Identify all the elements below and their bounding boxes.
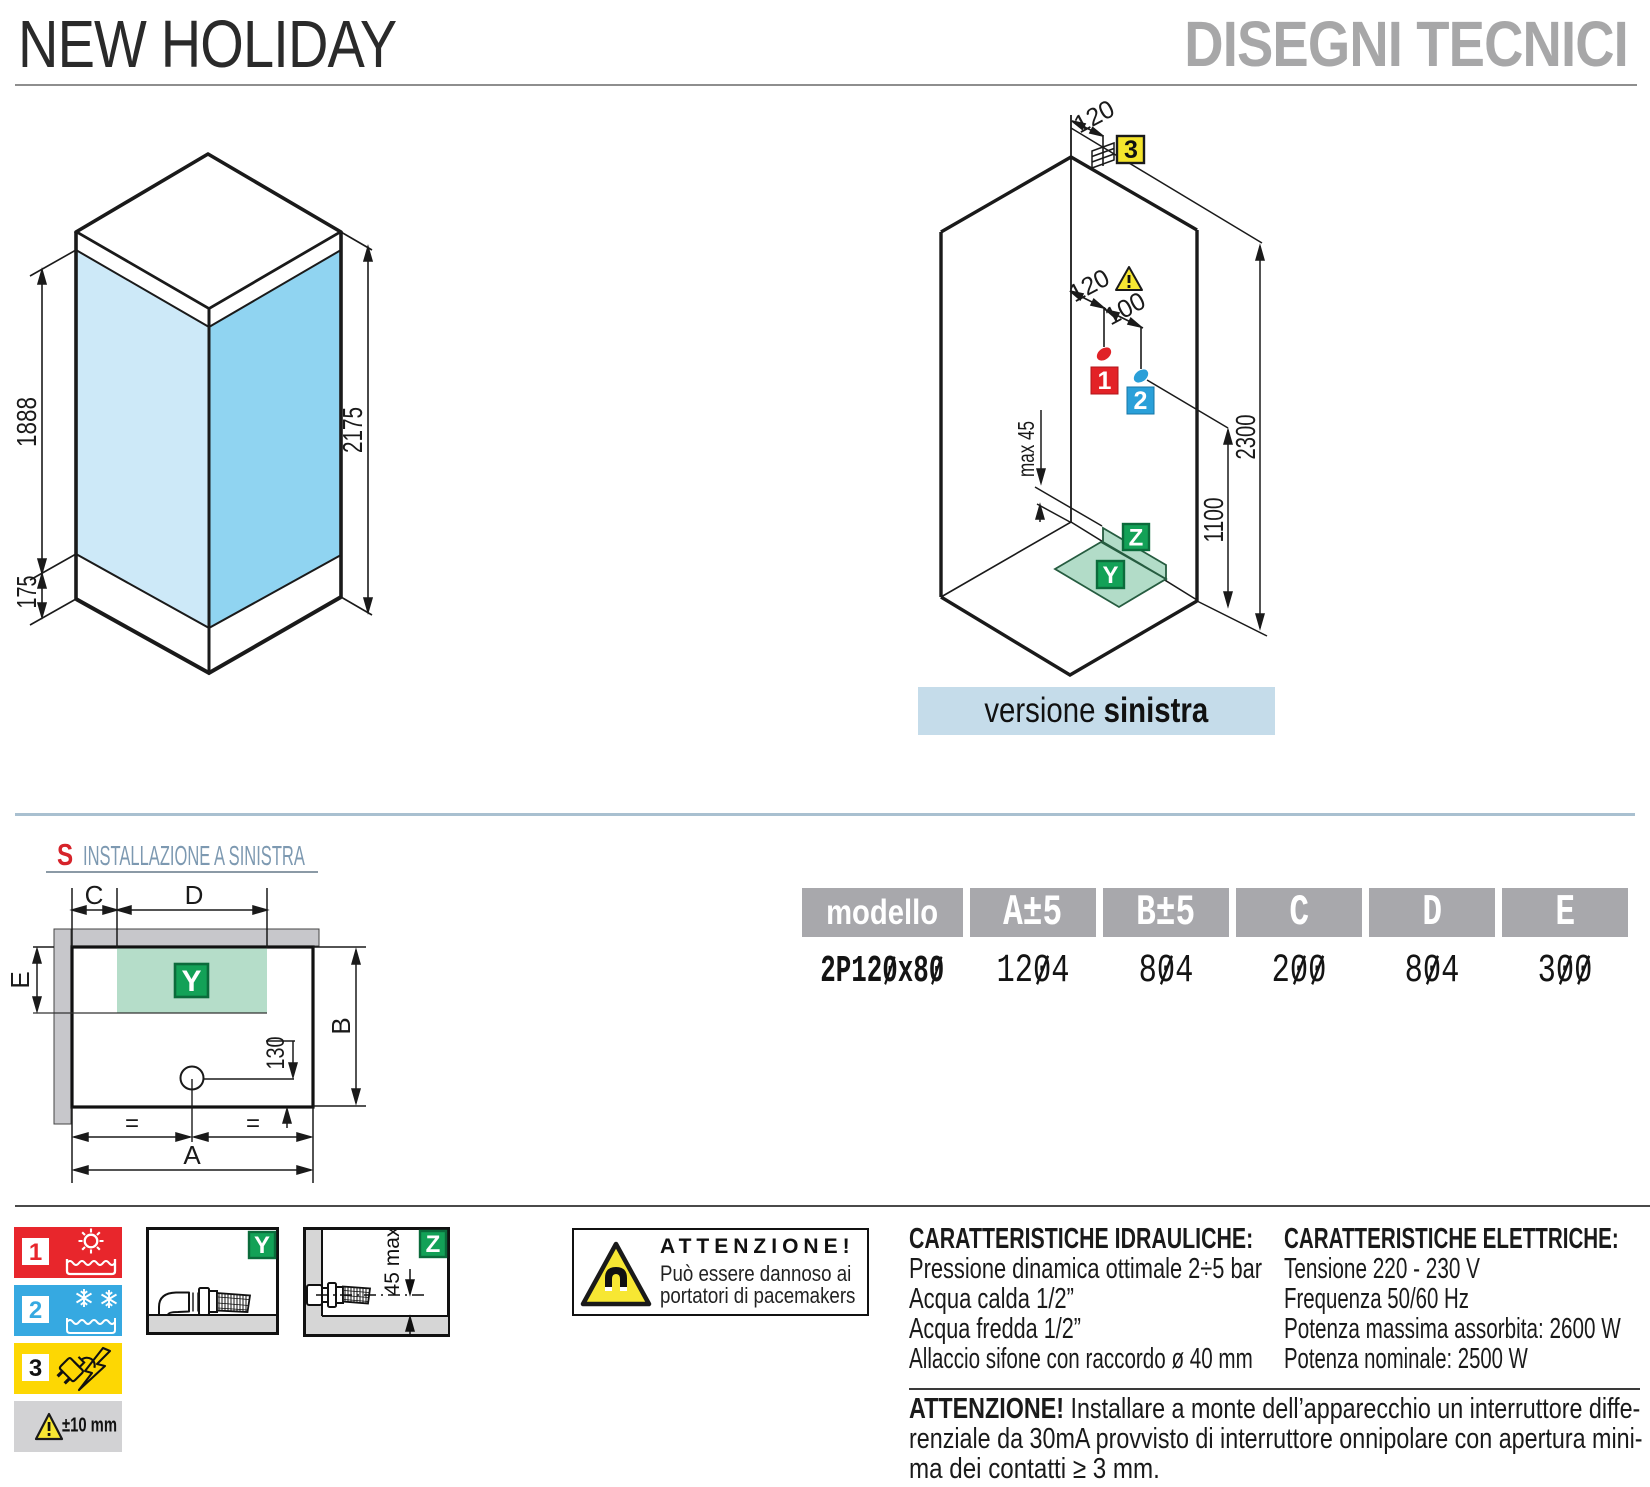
svg-text:A: A [183, 1140, 201, 1170]
svg-text:max 45: max 45 [1013, 421, 1039, 477]
svg-text:1888: 1888 [11, 397, 42, 447]
svg-text:3: 3 [29, 1355, 42, 1382]
svg-text:3: 3 [1124, 136, 1138, 164]
svg-text:Y: Y [181, 965, 201, 998]
svg-text:100: 100 [1100, 287, 1150, 331]
svg-text:D: D [185, 880, 204, 910]
svg-text:Y: Y [254, 1232, 270, 1259]
svg-text:Z: Z [426, 1231, 441, 1258]
svg-text:130: 130 [262, 1037, 290, 1070]
svg-text:B: B [326, 1017, 356, 1034]
svg-text:2: 2 [29, 1297, 42, 1324]
svg-text:=: = [246, 1110, 260, 1137]
svg-text:Z: Z [1129, 525, 1144, 552]
svg-text:=: = [125, 1110, 139, 1137]
svg-text:2: 2 [1134, 387, 1148, 415]
svg-text:175: 175 [11, 576, 42, 609]
svg-text:C: C [85, 880, 104, 910]
svg-text:45 max: 45 max [381, 1227, 404, 1295]
svg-text:E: E [5, 971, 35, 988]
svg-text:1100: 1100 [1198, 498, 1229, 543]
svg-text:±10 mm: ±10 mm [62, 1413, 117, 1436]
svg-text:Y: Y [1102, 562, 1118, 589]
svg-text:1: 1 [29, 1239, 42, 1266]
svg-text:2300: 2300 [1230, 415, 1261, 460]
svg-text:1: 1 [1098, 367, 1112, 395]
svg-text:120: 120 [1069, 95, 1119, 139]
svg-text:2175: 2175 [337, 407, 368, 453]
